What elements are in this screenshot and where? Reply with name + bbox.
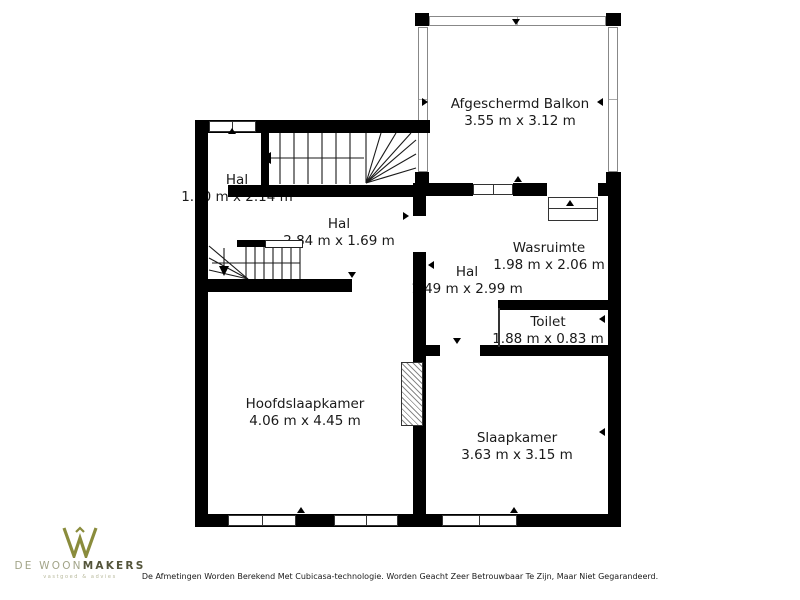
room-name: Hoofdslaapkamer	[205, 396, 405, 413]
screen-pane	[419, 100, 427, 171]
window-pane	[474, 185, 494, 194]
arrow-marker-icon	[199, 465, 205, 473]
stair-direction-arrow-lower	[219, 266, 229, 276]
arrow-marker-icon	[297, 507, 305, 513]
brand-name: DE WOONMAKERS	[10, 560, 150, 572]
window-pane	[480, 516, 516, 525]
wall-central	[413, 196, 426, 216]
room-dims: 3.63 m x 3.15 m	[417, 447, 617, 464]
wall-toilet-top	[498, 300, 608, 310]
screen-pane	[419, 28, 427, 100]
arrow-marker-icon	[599, 428, 605, 436]
room-label-afgeschermd-balkon: Afgeschermd Balkon 3.55 m x 3.12 m	[420, 96, 620, 130]
wall-hal-bedroom	[195, 279, 352, 292]
stair-rail	[265, 240, 303, 248]
window-pane	[335, 516, 367, 525]
balcony-post	[415, 13, 429, 26]
arrow-marker-icon	[457, 188, 465, 194]
balcony-screen-wall-right	[608, 27, 618, 172]
room-name: Slaapkamer	[417, 430, 617, 447]
wall-top-right	[513, 183, 547, 196]
arrow-marker-icon	[403, 212, 409, 220]
screen-pane	[609, 100, 617, 171]
disclaimer-text: De Afmetingen Worden Berekend Met Cubica…	[140, 572, 660, 581]
arrow-marker-icon	[428, 261, 434, 269]
window	[228, 515, 296, 526]
balcony-post	[415, 172, 429, 184]
arrow-marker-icon	[453, 338, 461, 344]
brand-tagline: vastgoed & advies	[10, 574, 150, 580]
floor-plan: Afgeschermd Balkon 3.55 m x 3.12 m Hal 1…	[0, 0, 800, 600]
room-label-slaapkamer: Slaapkamer 3.63 m x 3.15 m	[417, 430, 617, 464]
wall-stair-landing	[237, 240, 265, 247]
woonmakers-w-icon	[59, 526, 101, 558]
staircase-lower	[209, 246, 300, 279]
staircase-lines	[0, 0, 800, 600]
wall-stair-side	[261, 132, 269, 187]
window	[473, 184, 513, 195]
window-pane	[443, 516, 480, 525]
wall-toilet-bottom	[426, 345, 440, 356]
screen-pane	[430, 17, 518, 25]
screen-pane	[518, 17, 605, 25]
arrow-marker-icon	[566, 200, 574, 206]
shaft-hatched	[401, 362, 423, 426]
room-dims: 4.06 m x 4.45 m	[205, 413, 405, 430]
arrow-marker-icon	[422, 98, 428, 106]
brand-prefix: DE WOON	[15, 560, 83, 572]
window-pane	[229, 516, 263, 525]
company-logo: DE WOONMAKERS vastgoed & advies	[10, 526, 150, 580]
window-pane	[494, 185, 513, 194]
wall-toilet-partition	[498, 308, 500, 347]
arrow-marker-icon	[228, 128, 236, 134]
arrow-marker-icon	[514, 176, 522, 182]
room-label-hoofdslaapkamer: Hoofdslaapkamer 4.06 m x 4.45 m	[205, 396, 405, 430]
balcony-post	[606, 13, 621, 26]
arrow-marker-icon	[599, 315, 605, 323]
arrow-marker-icon	[512, 19, 520, 25]
balcony-post	[606, 172, 621, 184]
window-pane	[367, 516, 398, 525]
arrow-marker-icon	[597, 98, 603, 106]
window-pane	[233, 122, 255, 131]
wall-under-stairs	[228, 185, 426, 197]
room-name: Afgeschermd Balkon	[420, 96, 620, 113]
window	[334, 515, 398, 526]
wall-top-right	[598, 183, 621, 196]
arrow-marker-icon	[348, 272, 356, 278]
room-dims: 1.49 m x 2.99 m	[367, 281, 567, 298]
arrow-marker-icon	[510, 507, 518, 513]
brand-suffix: MAKERS	[83, 560, 146, 572]
room-dims: 3.55 m x 3.12 m	[420, 113, 620, 130]
room-name: Hal	[239, 216, 439, 233]
screen-pane	[609, 28, 617, 100]
window	[442, 515, 517, 526]
window-pane	[263, 516, 296, 525]
wall-toilet-bottom	[480, 345, 621, 356]
